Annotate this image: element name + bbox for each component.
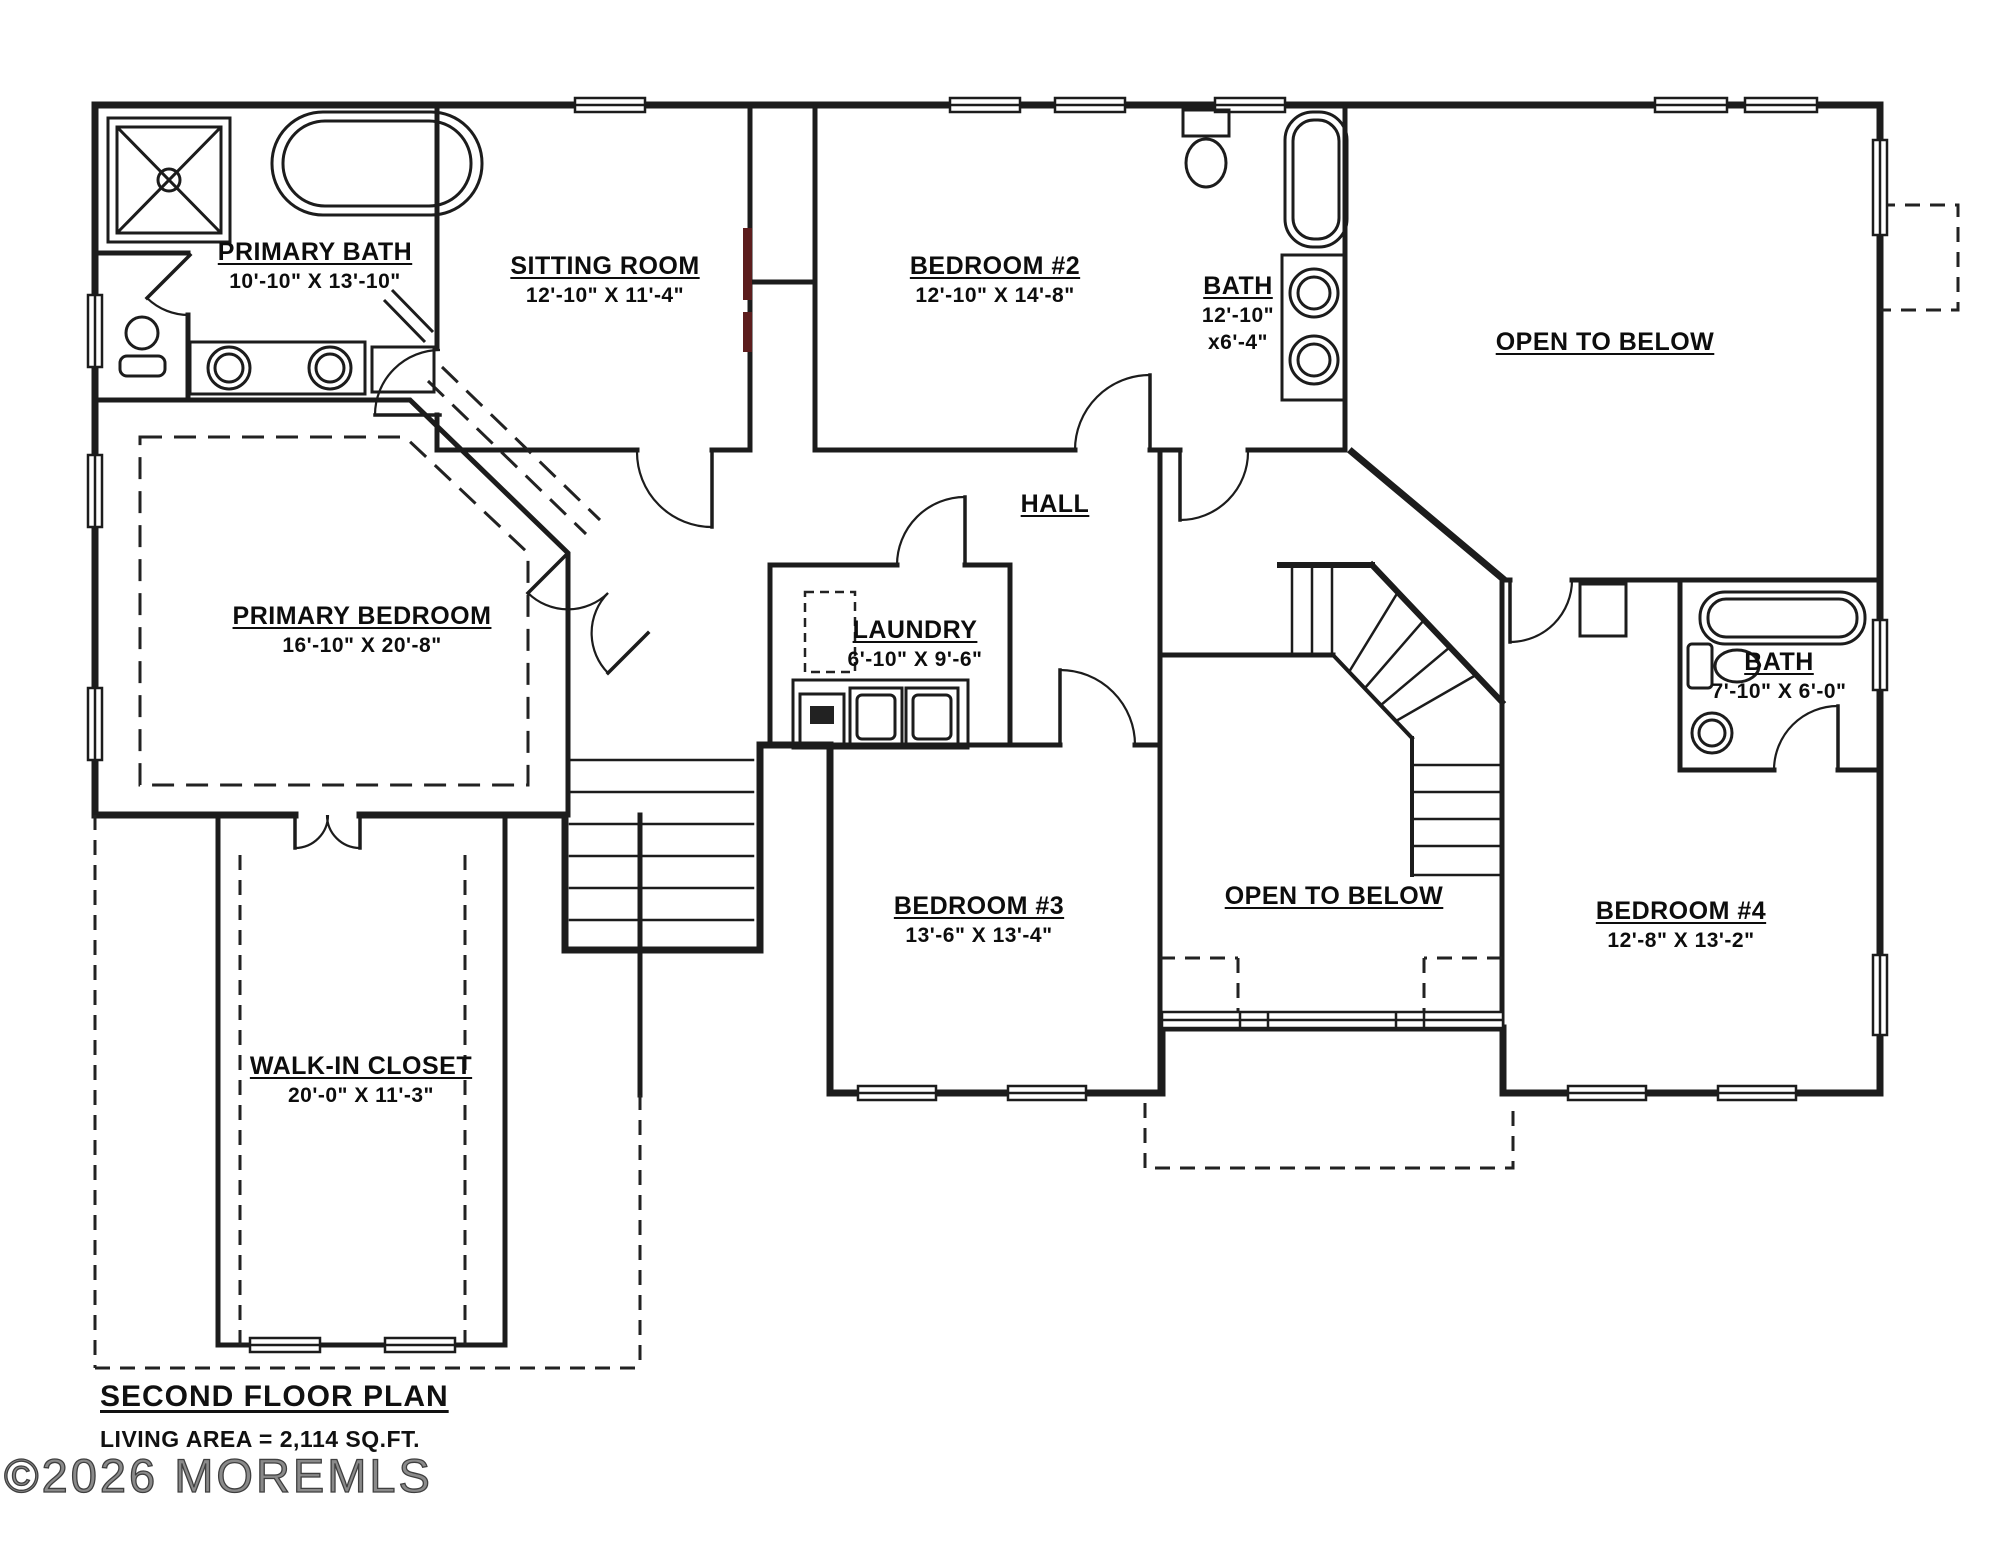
door-swings — [147, 298, 1838, 848]
shower-icon — [108, 118, 230, 242]
dryer-icon — [906, 688, 958, 746]
room-label-hall: HALL — [1021, 490, 1090, 519]
room-name: BATH — [1202, 272, 1274, 301]
room-label-bedroom-3: BEDROOM #3 13'-6" X 13'-4" — [894, 892, 1064, 948]
room-dims: 10'-10" X 13'-10" — [218, 270, 412, 294]
room-label-bath-2: BATH 12'-10" x6'-4" — [1202, 272, 1274, 355]
sink-icon — [1692, 713, 1732, 753]
washer-icon — [850, 688, 902, 746]
bathtub-icon — [272, 112, 482, 215]
room-name: WALK-IN CLOSET — [250, 1052, 472, 1081]
room-label-bath-3: BATH 7'-10" X 6'-0" — [1712, 648, 1847, 704]
room-label-primary-bath: PRIMARY BATH 10'-10" X 13'-10" — [218, 238, 412, 294]
tray-ceiling-dashed — [140, 367, 600, 785]
room-label-primary-bedroom: PRIMARY BEDROOM 16'-10" X 20'-8" — [233, 602, 492, 658]
room-label-laundry: LAUNDRY 6'-10" X 9'-6" — [848, 616, 983, 672]
room-name: BEDROOM #3 — [894, 892, 1064, 921]
room-name: HALL — [1021, 490, 1090, 519]
room-label-open-to-below-lower: OPEN TO BELOW — [1225, 882, 1444, 911]
room-name: OPEN TO BELOW — [1225, 882, 1444, 911]
foyer-diagonal-wall — [1352, 452, 1502, 578]
room-dims: 13'-6" X 13'-4" — [894, 924, 1064, 948]
room-name: PRIMARY BEDROOM — [233, 602, 492, 631]
title-block: SECOND FLOOR PLAN LIVING AREA = 2,114 SQ… — [100, 1380, 449, 1453]
room-name: BEDROOM #4 — [1596, 897, 1766, 926]
room-label-bedroom-4: BEDROOM #4 12'-8" X 13'-2" — [1596, 897, 1766, 953]
toilet-icon — [120, 317, 165, 376]
room-name: PRIMARY BATH — [218, 238, 412, 267]
room-name: LAUNDRY — [848, 616, 983, 645]
floor-plan-page: PRIMARY BATH 10'-10" X 13'-10" SITTING R… — [0, 0, 2000, 1545]
room-dims: 6'-10" X 9'-6" — [848, 648, 983, 672]
bath2-fixtures — [1183, 110, 1347, 400]
laundry-sink-icon — [800, 694, 844, 744]
room-dims: 12'-10" X 14'-8" — [910, 284, 1080, 308]
room-dims: 20'-0" X 11'-3" — [250, 1084, 472, 1108]
staircase-main — [1280, 565, 1502, 875]
linen-shelves — [384, 290, 433, 342]
vanity-sinks-icon — [190, 342, 434, 394]
room-label-bedroom-2: BEDROOM #2 12'-10" X 14'-8" — [910, 252, 1080, 308]
bedroom4-closet — [1580, 584, 1626, 636]
vanity-sinks-icon — [1282, 255, 1346, 400]
room-name: BEDROOM #2 — [910, 252, 1080, 281]
room-label-sitting-room: SITTING ROOM 12'-10" X 11'-4" — [510, 252, 699, 308]
toilet-icon — [1183, 110, 1229, 187]
room-label-walk-in-closet: WALK-IN CLOSET 20'-0" X 11'-3" — [250, 1052, 472, 1108]
floor-plan-drawing — [0, 0, 2000, 1545]
room-name: SITTING ROOM — [510, 252, 699, 281]
mls-watermark: ©2026 MOREMLS — [4, 1448, 433, 1503]
staircase-secondary — [570, 760, 753, 920]
room-dims: 12'-8" X 13'-2" — [1596, 929, 1766, 953]
closet-door-accent — [743, 228, 752, 352]
room-dims: 12'-10" X 11'-4" — [510, 284, 699, 308]
room-label-open-to-below-upper: OPEN TO BELOW — [1496, 328, 1715, 357]
room-dims: 12'-10" — [1202, 304, 1274, 328]
room-dims: 7'-10" X 6'-0" — [1712, 680, 1847, 704]
bathtub-icon — [1285, 112, 1347, 247]
room-name: OPEN TO BELOW — [1496, 328, 1715, 357]
laundry-fixtures — [793, 680, 968, 748]
plan-title: SECOND FLOOR PLAN — [100, 1380, 449, 1414]
room-name: BATH — [1712, 648, 1847, 677]
room-dims: x6'-4" — [1202, 331, 1274, 355]
bathtub-icon — [1700, 592, 1865, 644]
room-dims: 16'-10" X 20'-8" — [233, 634, 492, 658]
